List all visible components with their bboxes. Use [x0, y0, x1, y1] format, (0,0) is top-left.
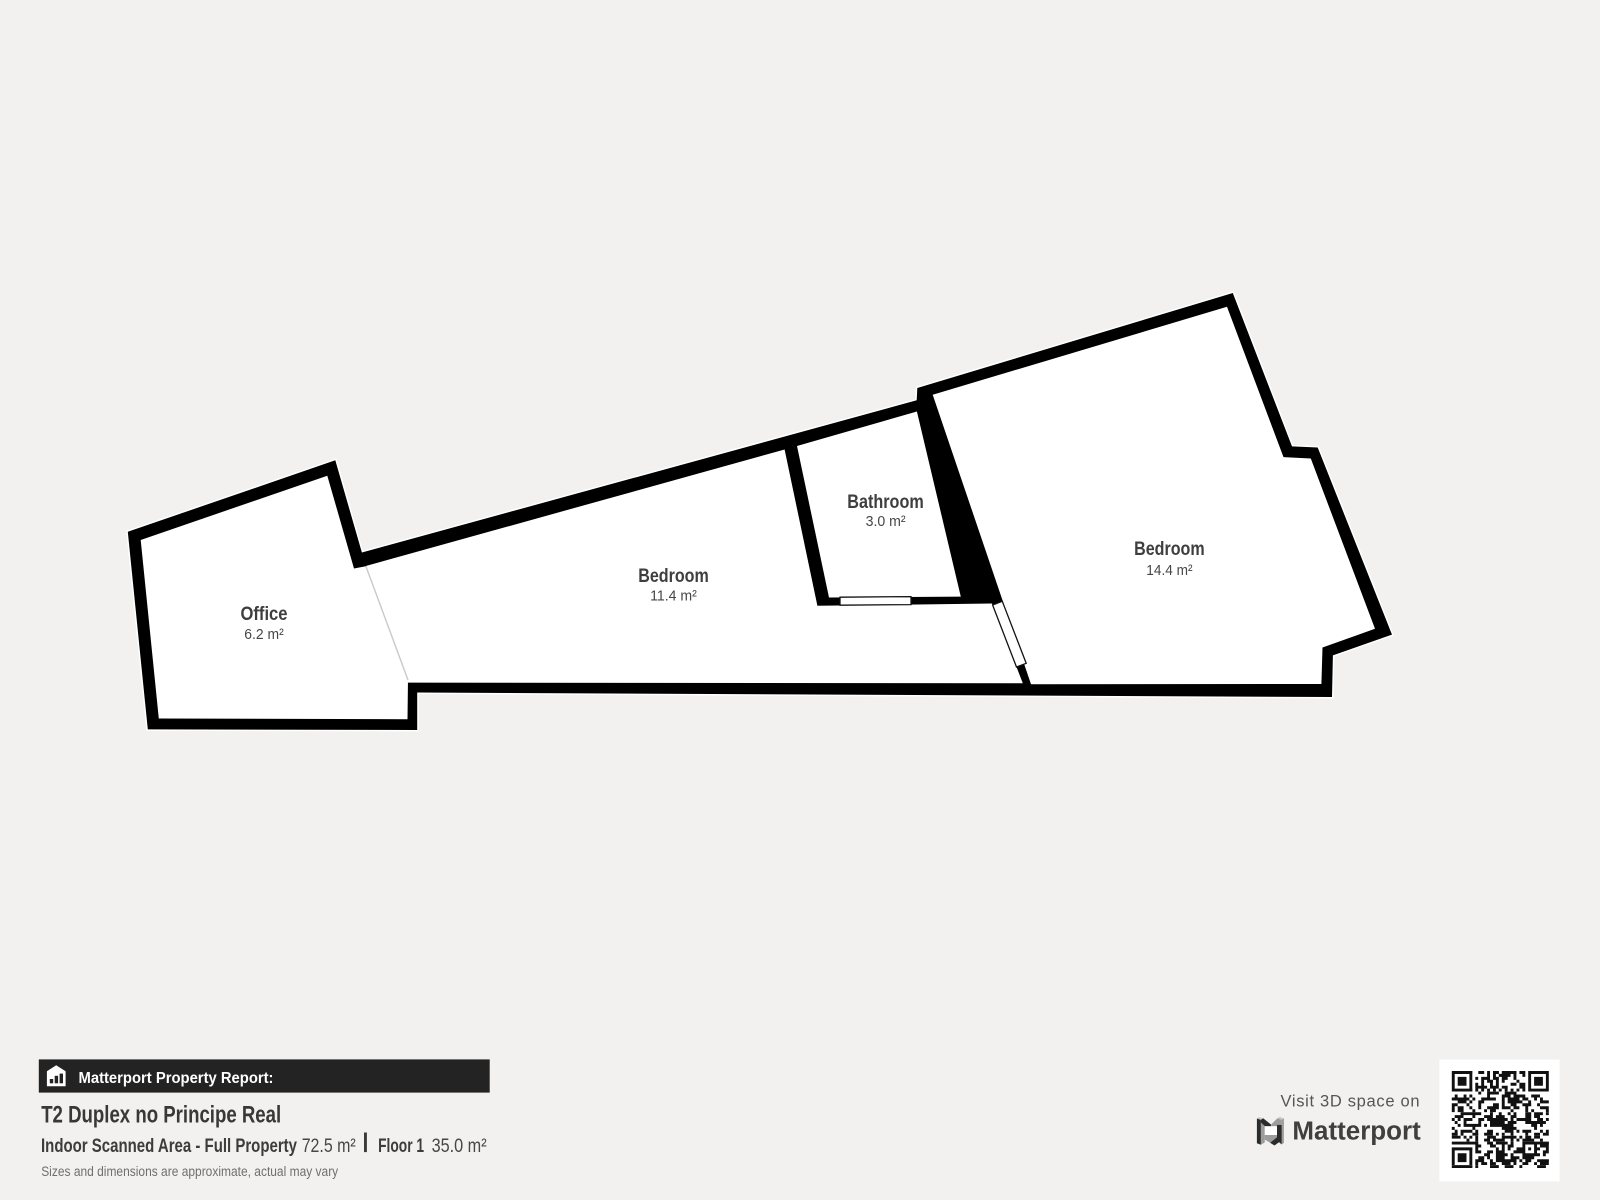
svg-text:Bedroom: Bedroom [1134, 538, 1205, 560]
svg-text:Indoor Scanned Area - Full Pro: Indoor Scanned Area - Full Property [41, 1135, 297, 1157]
svg-text:3.0 m²: 3.0 m² [866, 513, 906, 530]
svg-text:35.0 m²: 35.0 m² [432, 1135, 487, 1157]
svg-text:6.2 m²: 6.2 m² [244, 626, 283, 643]
svg-text:Visit 3D space on: Visit 3D space on [1281, 1093, 1420, 1111]
svg-text:72.5 m²: 72.5 m² [302, 1135, 356, 1157]
svg-text:Bedroom: Bedroom [638, 565, 709, 587]
svg-text:Bathroom: Bathroom [847, 491, 924, 513]
svg-text:11.4 m²: 11.4 m² [650, 587, 697, 604]
svg-text:Matterport: Matterport [1292, 1118, 1421, 1146]
svg-text:Floor 1: Floor 1 [378, 1135, 424, 1157]
svg-text:Sizes and dimensions are appro: Sizes and dimensions are approximate, ac… [41, 1164, 338, 1179]
svg-text:T2 Duplex no Principe Real: T2 Duplex no Principe Real [41, 1102, 281, 1129]
svg-text:Office: Office [241, 603, 288, 625]
svg-text:Matterport Property Report:: Matterport Property Report: [79, 1070, 274, 1087]
svg-text:14.4 m²: 14.4 m² [1146, 562, 1192, 579]
